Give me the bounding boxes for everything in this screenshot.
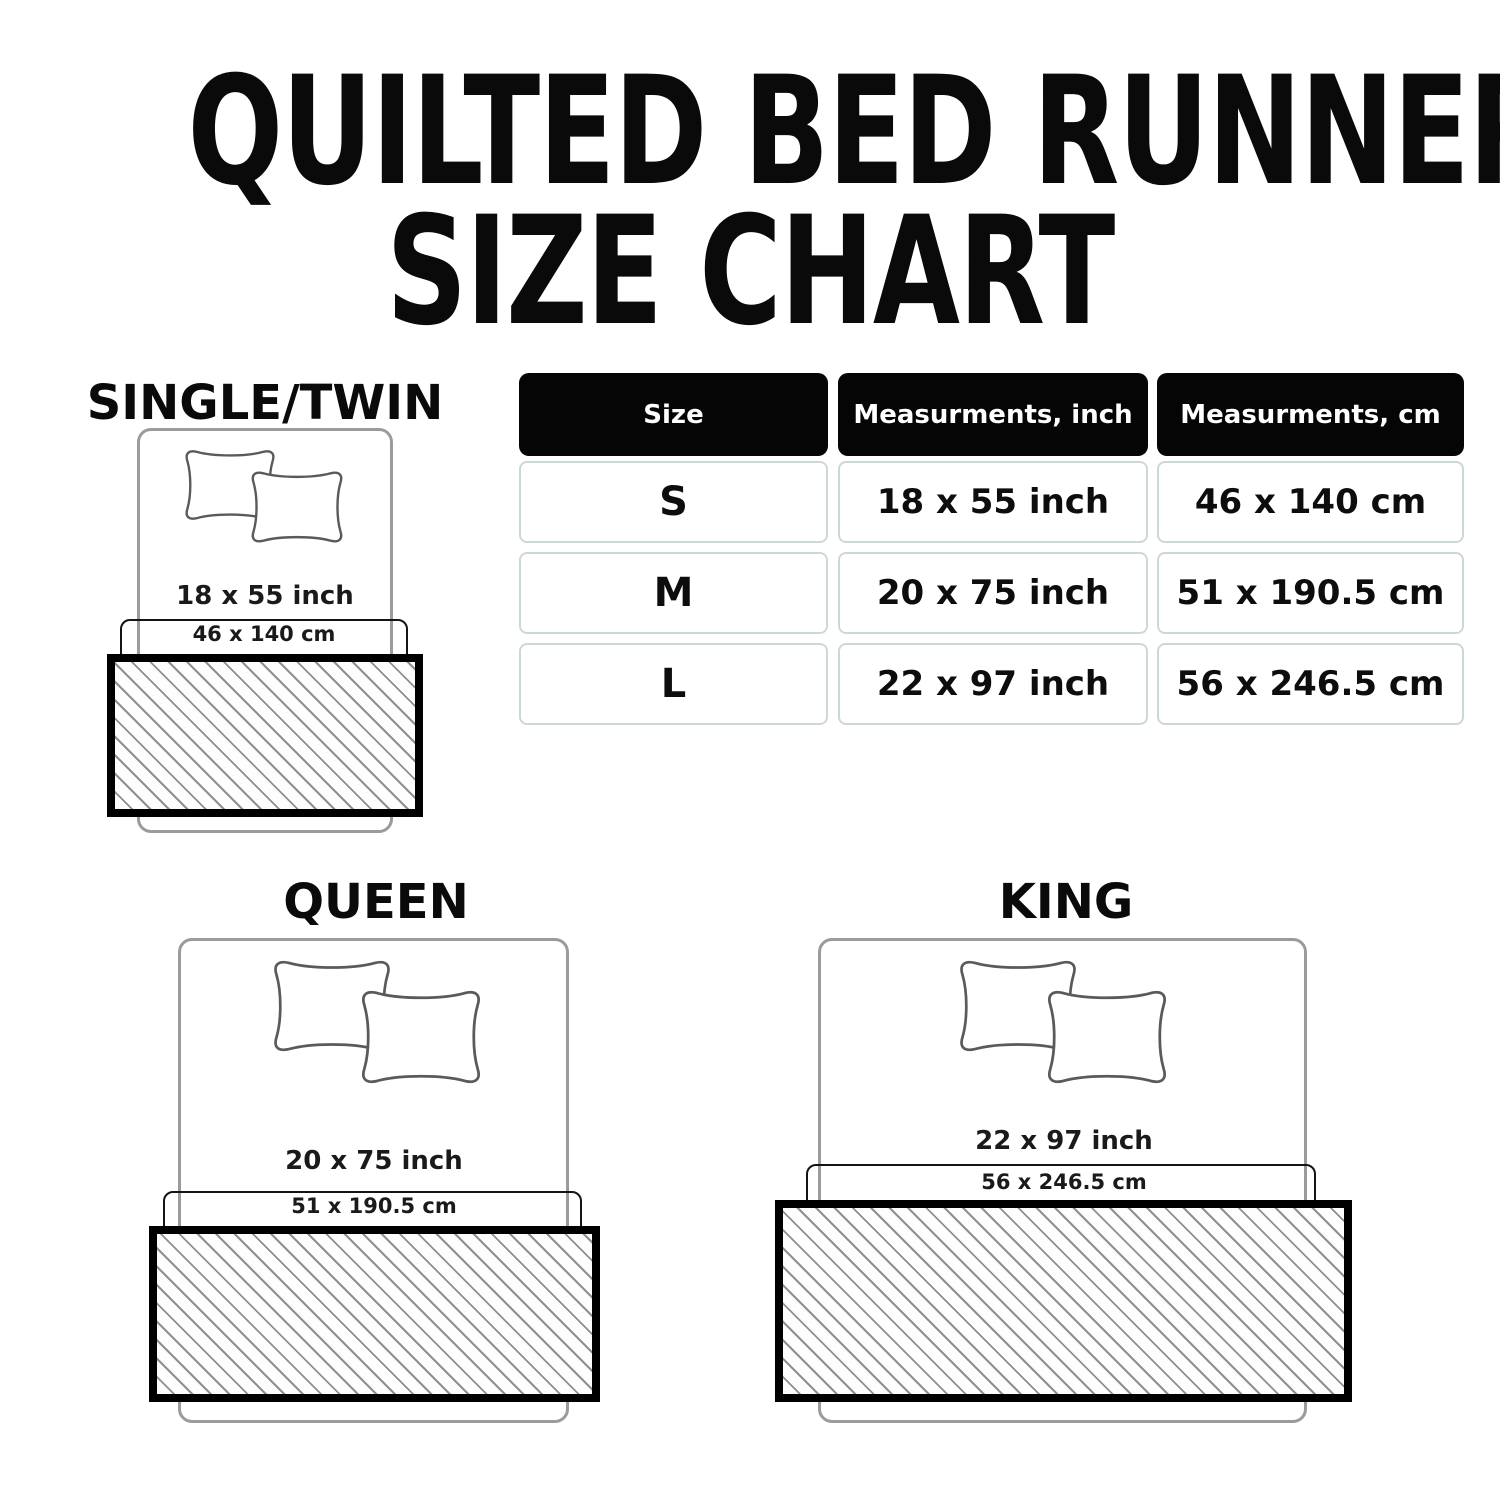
- diagram-label-king: KING: [866, 877, 1266, 927]
- bed-runner-hatch-king: [775, 1200, 1352, 1402]
- table-cell-s-cm: 46 x 140 cm: [1157, 461, 1464, 543]
- table-header-measurements-cm: Measurments, cm: [1157, 373, 1464, 456]
- dimension-inch-king: 22 x 97 inch: [904, 1127, 1224, 1156]
- table-cell-m-cm: 51 x 190.5 cm: [1157, 552, 1464, 634]
- table-cell-s-inch: 18 x 55 inch: [838, 461, 1148, 543]
- dimension-cm-single-twin: 46 x 140 cm: [104, 623, 424, 646]
- bed-runner-hatch-queen: [149, 1226, 600, 1402]
- pillow-icon: [1036, 988, 1178, 1086]
- table-cell-l-inch: 22 x 97 inch: [838, 643, 1148, 725]
- diagram-label-single-twin: SINGLE/TWIN: [65, 378, 465, 428]
- table-header-measurements-inch: Measurments, inch: [838, 373, 1148, 456]
- table-cell-size-m: M: [519, 552, 828, 634]
- dimension-inch-single-twin: 18 x 55 inch: [105, 582, 425, 611]
- dimension-cm-king: 56 x 246.5 cm: [904, 1171, 1224, 1194]
- dimension-inch-queen: 20 x 75 inch: [214, 1147, 534, 1176]
- bed-runner-hatch-single-twin: [107, 654, 423, 817]
- table-cell-l-cm: 56 x 246.5 cm: [1157, 643, 1464, 725]
- table-cell-size-s: S: [519, 461, 828, 543]
- table-cell-size-l: L: [519, 643, 828, 725]
- quilted-bed-runner-size-chart: { "title": { "line1": "QUILTED BED RUNNE…: [0, 0, 1500, 1500]
- dimension-cm-queen: 51 x 190.5 cm: [214, 1195, 534, 1218]
- pillow-icon: [244, 467, 350, 547]
- table-cell-m-inch: 20 x 75 inch: [838, 552, 1148, 634]
- page-title-line2: SIZE CHART: [188, 197, 1313, 347]
- table-header-size: Size: [519, 373, 828, 456]
- diagram-label-queen: QUEEN: [176, 877, 576, 927]
- pillow-icon: [350, 988, 492, 1086]
